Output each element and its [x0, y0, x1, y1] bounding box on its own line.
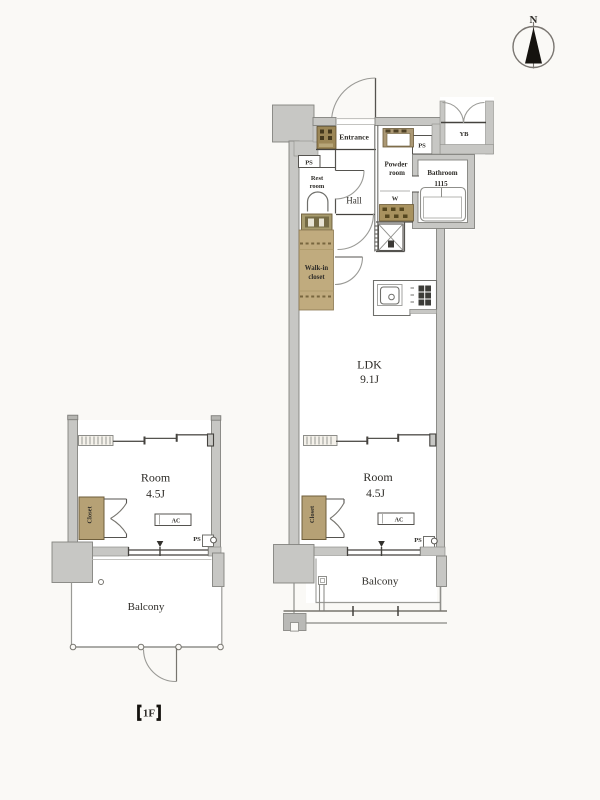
- svg-text:Powder: Powder: [385, 161, 408, 169]
- svg-text:PS: PS: [193, 536, 201, 543]
- svg-text:AC: AC: [395, 518, 404, 524]
- svg-text:room: room: [389, 169, 405, 177]
- svg-text:W: W: [392, 196, 399, 203]
- svg-text:room: room: [310, 183, 325, 190]
- svg-text:AC: AC: [172, 519, 181, 525]
- svg-text:4.5J: 4.5J: [146, 489, 165, 501]
- svg-text:closet: closet: [308, 274, 325, 281]
- svg-text:Room: Room: [363, 470, 393, 484]
- svg-text:Balcony: Balcony: [362, 576, 399, 588]
- svg-text:PS: PS: [418, 143, 426, 150]
- svg-text:YB: YB: [459, 131, 469, 138]
- svg-text:4.5J: 4.5J: [366, 488, 385, 500]
- svg-text:Walk-in: Walk-in: [305, 265, 329, 272]
- svg-text:Hall: Hall: [346, 196, 362, 206]
- svg-text:Entrance: Entrance: [339, 133, 369, 142]
- svg-text:9.1J: 9.1J: [360, 374, 379, 386]
- svg-text:1F: 1F: [143, 708, 156, 720]
- svg-text:Room: Room: [141, 471, 171, 485]
- svg-text:LDK: LDK: [357, 358, 382, 372]
- svg-text:Rest: Rest: [311, 175, 324, 182]
- svg-text:Closet: Closet: [309, 505, 316, 523]
- svg-text:Bathroom: Bathroom: [427, 169, 457, 177]
- svg-text:1115: 1115: [434, 180, 448, 188]
- svg-text:PS: PS: [305, 160, 313, 167]
- svg-text:N: N: [530, 14, 538, 26]
- svg-text:Balcony: Balcony: [128, 601, 165, 613]
- svg-text:Closet: Closet: [87, 506, 94, 524]
- svg-text:PS: PS: [414, 537, 422, 544]
